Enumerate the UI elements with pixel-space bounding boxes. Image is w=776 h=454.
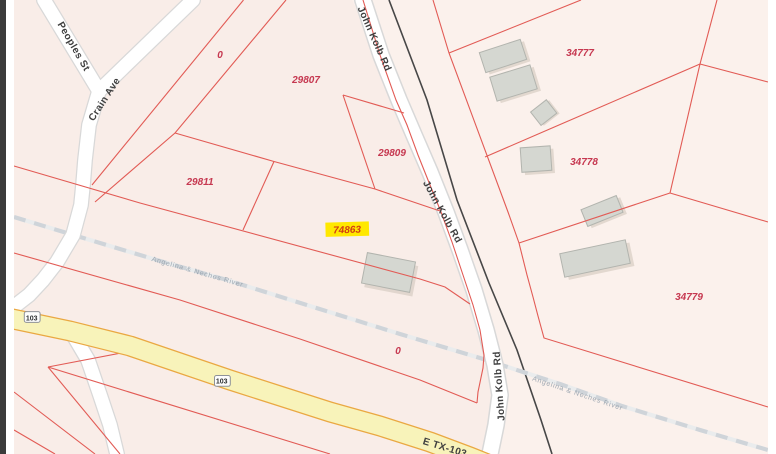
- svg-text:29809: 29809: [377, 148, 406, 159]
- svg-text:29811: 29811: [185, 177, 214, 188]
- svg-text:29807: 29807: [291, 75, 320, 86]
- svg-text:0: 0: [395, 346, 401, 357]
- svg-text:34777: 34777: [566, 48, 594, 59]
- svg-text:74863: 74863: [333, 225, 362, 237]
- svg-text:103: 103: [26, 316, 38, 323]
- svg-text:103: 103: [216, 379, 228, 386]
- svg-text:34779: 34779: [675, 292, 703, 303]
- svg-text:0: 0: [217, 50, 223, 61]
- svg-text:34778: 34778: [570, 157, 598, 168]
